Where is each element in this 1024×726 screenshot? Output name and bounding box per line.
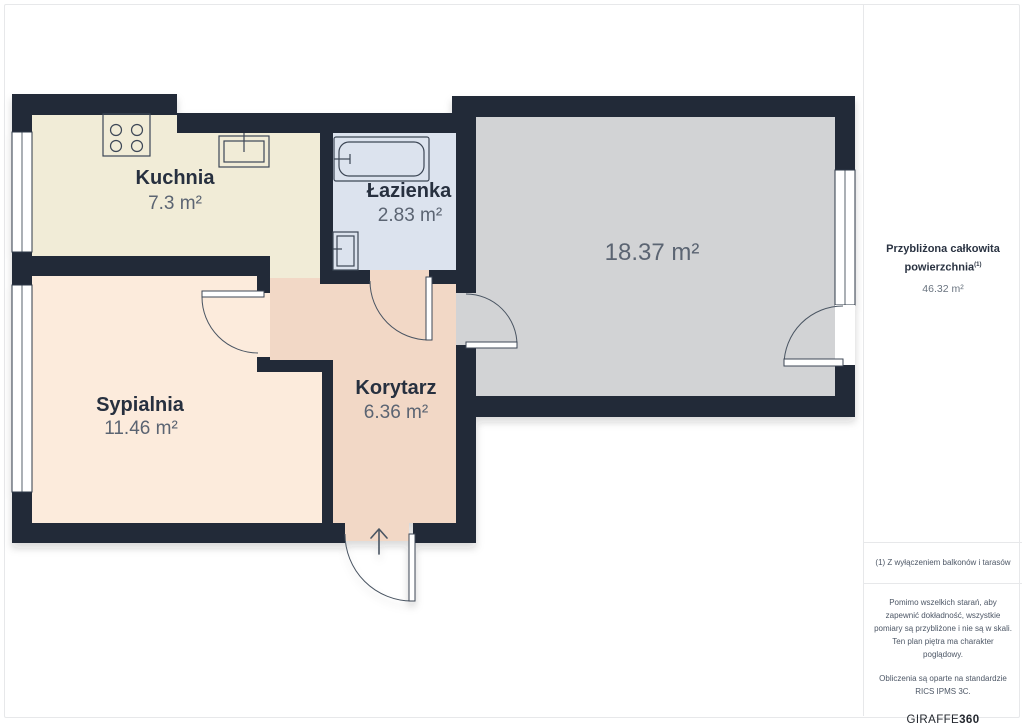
total-area-block: Przybliżona całkowita powierzchnia(1) 46… (864, 241, 1022, 295)
total-area-value: 46.32 m² (864, 283, 1022, 295)
disclaimer-line: Ten plan piętra ma charakter (864, 635, 1022, 648)
disclaimer-block: Pomimo wszelkich starań, aby zapewnić do… (864, 596, 1022, 726)
room-area-korytarz: 6.36 m² (364, 402, 428, 423)
room-label-korytarz: Korytarz (355, 377, 436, 399)
room-area-sypialnia: 11.46 m² (104, 418, 178, 439)
disclaimer-line: pomiary są przybliżone i nie są w skali. (864, 622, 1022, 635)
sidebar-hdivider-1 (864, 542, 1022, 543)
disclaimer-line: RICS IPMS 3C. (864, 685, 1022, 698)
window-pokoj (835, 170, 855, 305)
footnote-block: (1) Z wyłączeniem balkonów i tarasów (864, 558, 1022, 567)
room-label-sypialnia: Sypialnia (96, 394, 185, 416)
disclaimer-line: zapewnić dokładność, wszystkie (864, 609, 1022, 622)
total-area-title: Przybliżona całkowita powierzchnia(1) (864, 241, 1022, 276)
door-entrance (345, 534, 415, 601)
window-sypialnia (12, 285, 32, 492)
room-label-kuchnia: Kuchnia (136, 167, 216, 189)
sidebar-hdivider-2 (864, 583, 1022, 584)
disclaimer-line: Pomimo wszelkich starań, aby (864, 596, 1022, 609)
disclaimer-line: Obliczenia są oparte na standardzie (864, 672, 1022, 685)
footnote-marker: (1) (974, 262, 981, 268)
window-kuchnia (12, 132, 32, 252)
room-area-kuchnia: 7.3 m² (148, 193, 202, 214)
disclaimer-line: poglądowy. (864, 648, 1022, 661)
floorplan: Kuchnia 7.3 m² Łazienka 2.83 m² Sypialni… (0, 0, 862, 724)
balcony-door-opening (835, 305, 855, 365)
room-label-lazienka: Łazienka (367, 180, 452, 202)
footnote-text: (1) Z wyłączeniem balkonów i tarasów (864, 558, 1022, 567)
room-area-pokoj: 18.37 m² (605, 239, 700, 266)
room-area-lazienka: 2.83 m² (378, 205, 442, 226)
giraffe360-logo: GIRAFFE360 (864, 714, 1022, 726)
